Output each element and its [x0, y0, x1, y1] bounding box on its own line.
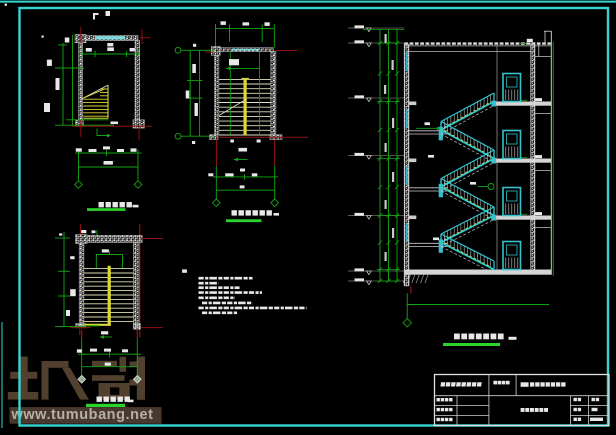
- svg-text:www.tumubang.net: www.tumubang.net: [11, 407, 154, 423]
